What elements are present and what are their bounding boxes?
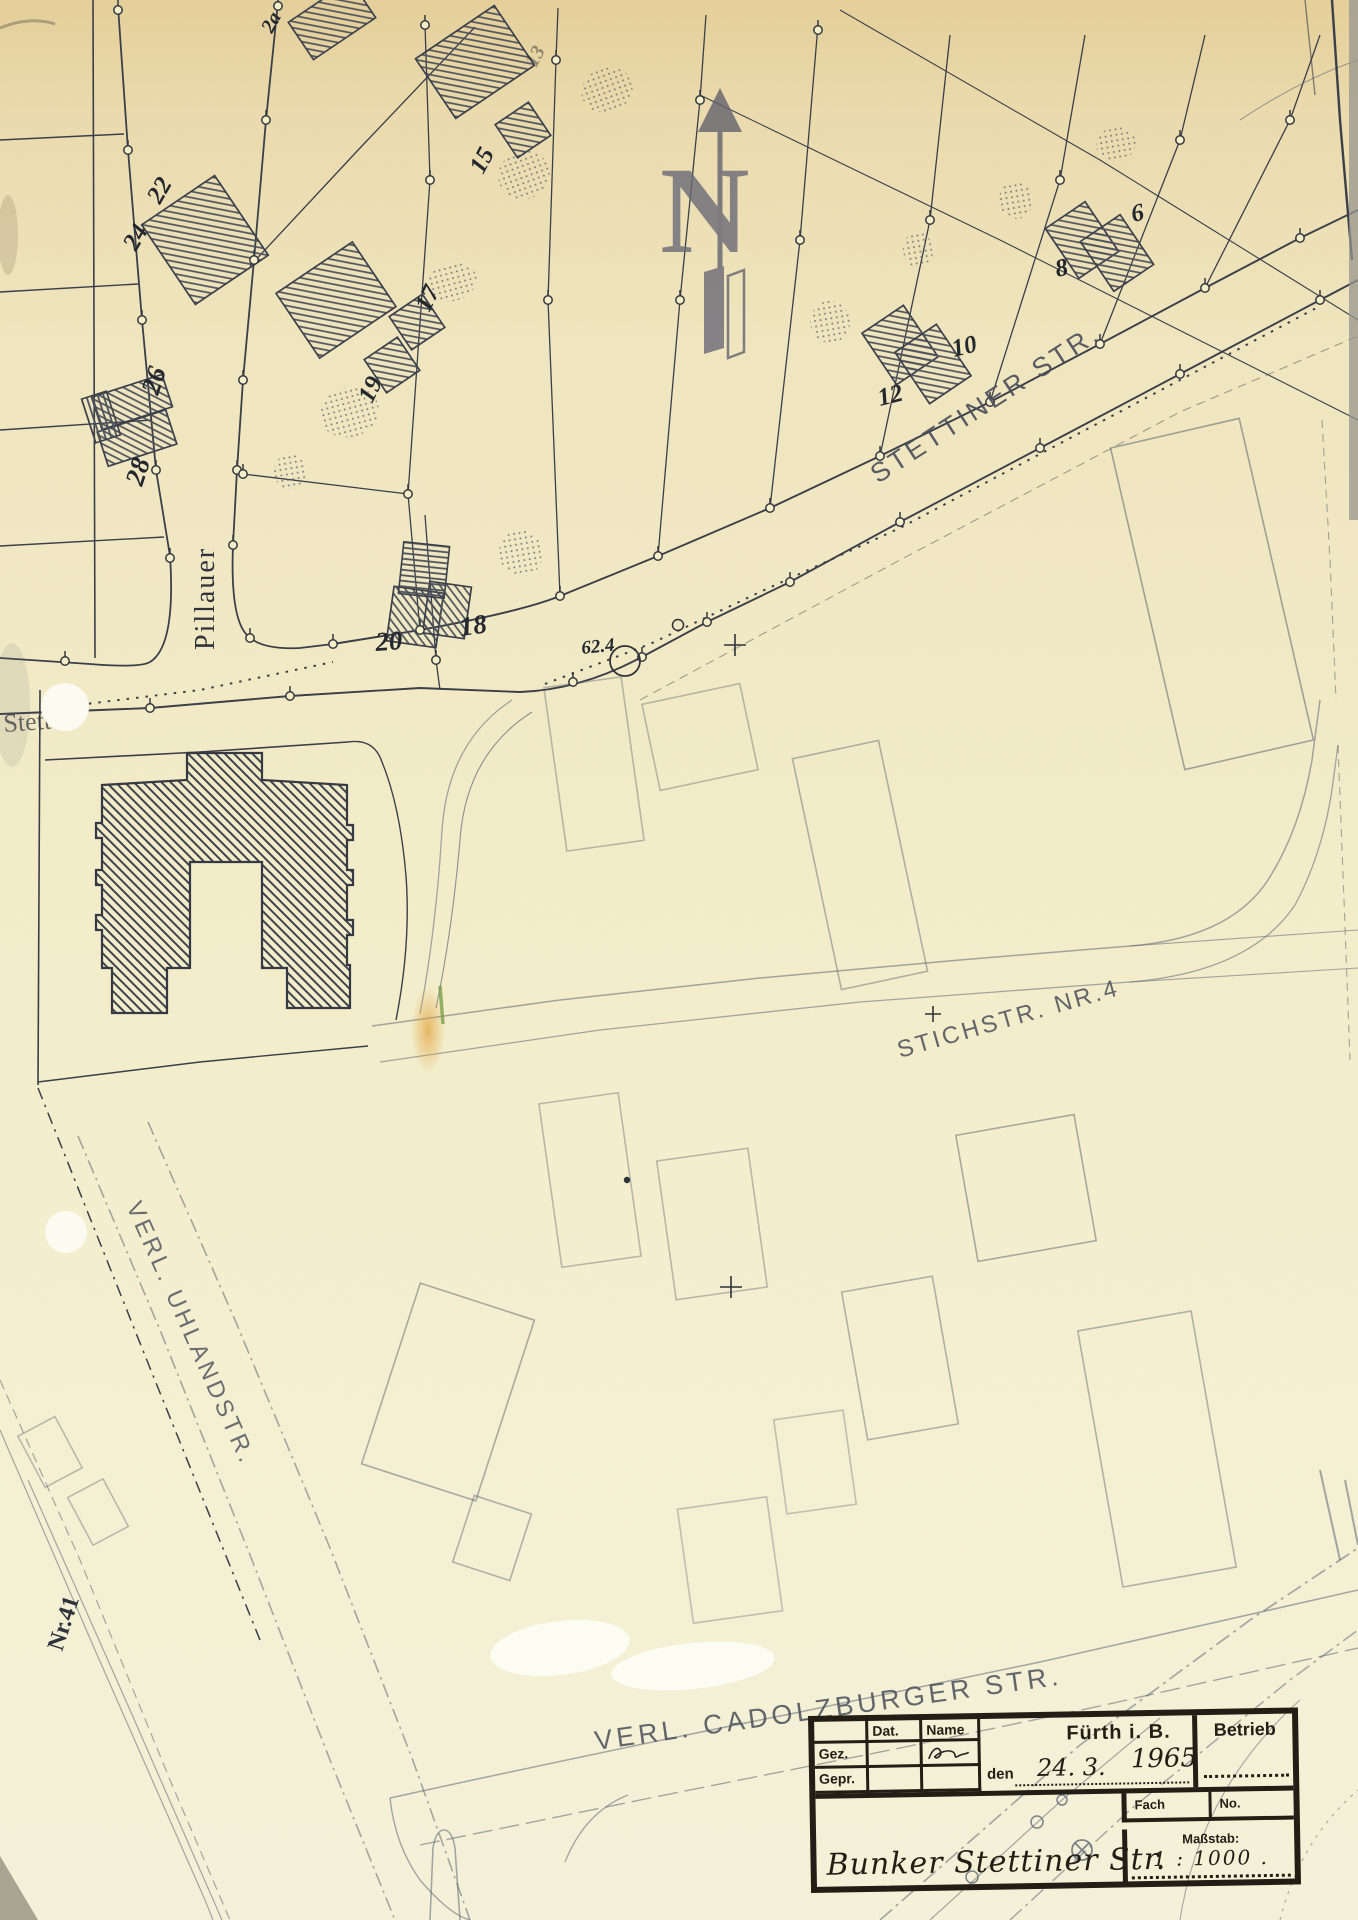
- survey-point: [250, 256, 258, 264]
- survey-point: [896, 518, 904, 526]
- survey-point: [124, 146, 132, 154]
- drawing-title: Bunker Stettiner Str.: [826, 1842, 1166, 1883]
- signature-table: Dat. Name Gez. Gepr.: [814, 1719, 981, 1794]
- survey-point: [696, 96, 704, 104]
- survey-point: [569, 678, 577, 686]
- survey-point: [926, 216, 934, 224]
- building-footprint: [398, 542, 449, 599]
- survey-point: [1201, 284, 1209, 292]
- survey-point: [416, 626, 424, 634]
- survey-point: [1296, 234, 1304, 242]
- drawn-row-label: Gez.: [814, 1743, 868, 1769]
- title-block-top: Dat. Name Gez. Gepr. Fürth i. B. Betrieb…: [814, 1714, 1293, 1799]
- title-block: Dat. Name Gez. Gepr. Fürth i. B. Betrieb…: [808, 1707, 1301, 1893]
- survey-point: [786, 578, 794, 586]
- survey-point: [1176, 370, 1184, 378]
- survey-point: [138, 316, 146, 324]
- house-number: 20: [373, 625, 404, 657]
- survey-point: [766, 504, 774, 512]
- survey-point: [556, 592, 564, 600]
- year-value: 1965: [1131, 1743, 1198, 1774]
- survey-point: [1316, 296, 1324, 304]
- fach-label: Fach: [1126, 1792, 1211, 1818]
- date-prefix: den: [987, 1765, 1014, 1782]
- empty-header-cell: [814, 1721, 868, 1744]
- date-dotted-line: [1015, 1781, 1189, 1786]
- survey-point: [229, 541, 237, 549]
- ink-speck: [624, 1177, 630, 1183]
- survey-point: [329, 640, 337, 648]
- survey-point: [703, 618, 711, 626]
- survey-point: [552, 56, 560, 64]
- survey-point: [544, 296, 552, 304]
- hole-punch: [45, 1211, 87, 1253]
- hole-punch: [41, 683, 89, 731]
- signature-mark: [927, 1744, 971, 1763]
- north-letter: N: [660, 142, 750, 279]
- scan-edge-strip: [1349, 0, 1358, 520]
- checked-date-cell: [869, 1767, 923, 1793]
- survey-point: [246, 634, 254, 642]
- survey-point: [1056, 176, 1064, 184]
- drawn-date-cell: [868, 1742, 922, 1768]
- survey-point: [239, 376, 247, 384]
- department-label: Betrieb: [1197, 1719, 1292, 1742]
- survey-point: [676, 296, 684, 304]
- signature-cell: [922, 1741, 980, 1767]
- checked-name-cell: [923, 1766, 981, 1792]
- survey-point: [114, 6, 122, 14]
- survey-point: [796, 236, 804, 244]
- checked-row-label: Gepr.: [815, 1768, 869, 1794]
- fach-no-row: Fach No.: [1121, 1791, 1293, 1823]
- date-value: 24. 3.: [1037, 1753, 1106, 1782]
- survey-point: [274, 2, 282, 10]
- survey-point: [146, 704, 154, 712]
- survey-point: [426, 176, 434, 184]
- street-label-pillauer: Pillauer: [190, 547, 221, 650]
- department-box: Betrieb: [1192, 1714, 1293, 1788]
- survey-point: [1176, 136, 1184, 144]
- survey-point: [814, 26, 822, 34]
- no-label: No.: [1211, 1791, 1293, 1817]
- survey-point: [421, 21, 429, 29]
- survey-point: [239, 470, 247, 478]
- title-block-bottom: Fach No. Maßstab: 1 : 1000 . Bunker Stet…: [815, 1791, 1294, 1887]
- date-column-header: Dat.: [868, 1720, 922, 1743]
- survey-point: [432, 656, 440, 664]
- survey-point: [1286, 116, 1294, 124]
- survey-point: [654, 552, 662, 560]
- elevation-label: 62.4: [580, 635, 615, 659]
- house-number: 18: [458, 608, 489, 642]
- survey-point: [262, 116, 270, 124]
- north-arrow-tail: [704, 266, 724, 354]
- name-column-header: Name: [922, 1719, 980, 1742]
- city-label: Fürth i. B.: [1066, 1721, 1171, 1746]
- survey-point: [286, 692, 294, 700]
- survey-point: [1036, 444, 1044, 452]
- scanned-site-plan: N STETTINER STR. STICHSTR. NR.4 VERL. UH…: [0, 0, 1358, 1920]
- department-dotted-line: [1204, 1774, 1289, 1778]
- map-canvas: N STETTINER STR. STICHSTR. NR.4 VERL. UH…: [0, 0, 1358, 1920]
- survey-point: [166, 554, 174, 562]
- survey-point: [61, 657, 69, 665]
- survey-point: [404, 490, 412, 498]
